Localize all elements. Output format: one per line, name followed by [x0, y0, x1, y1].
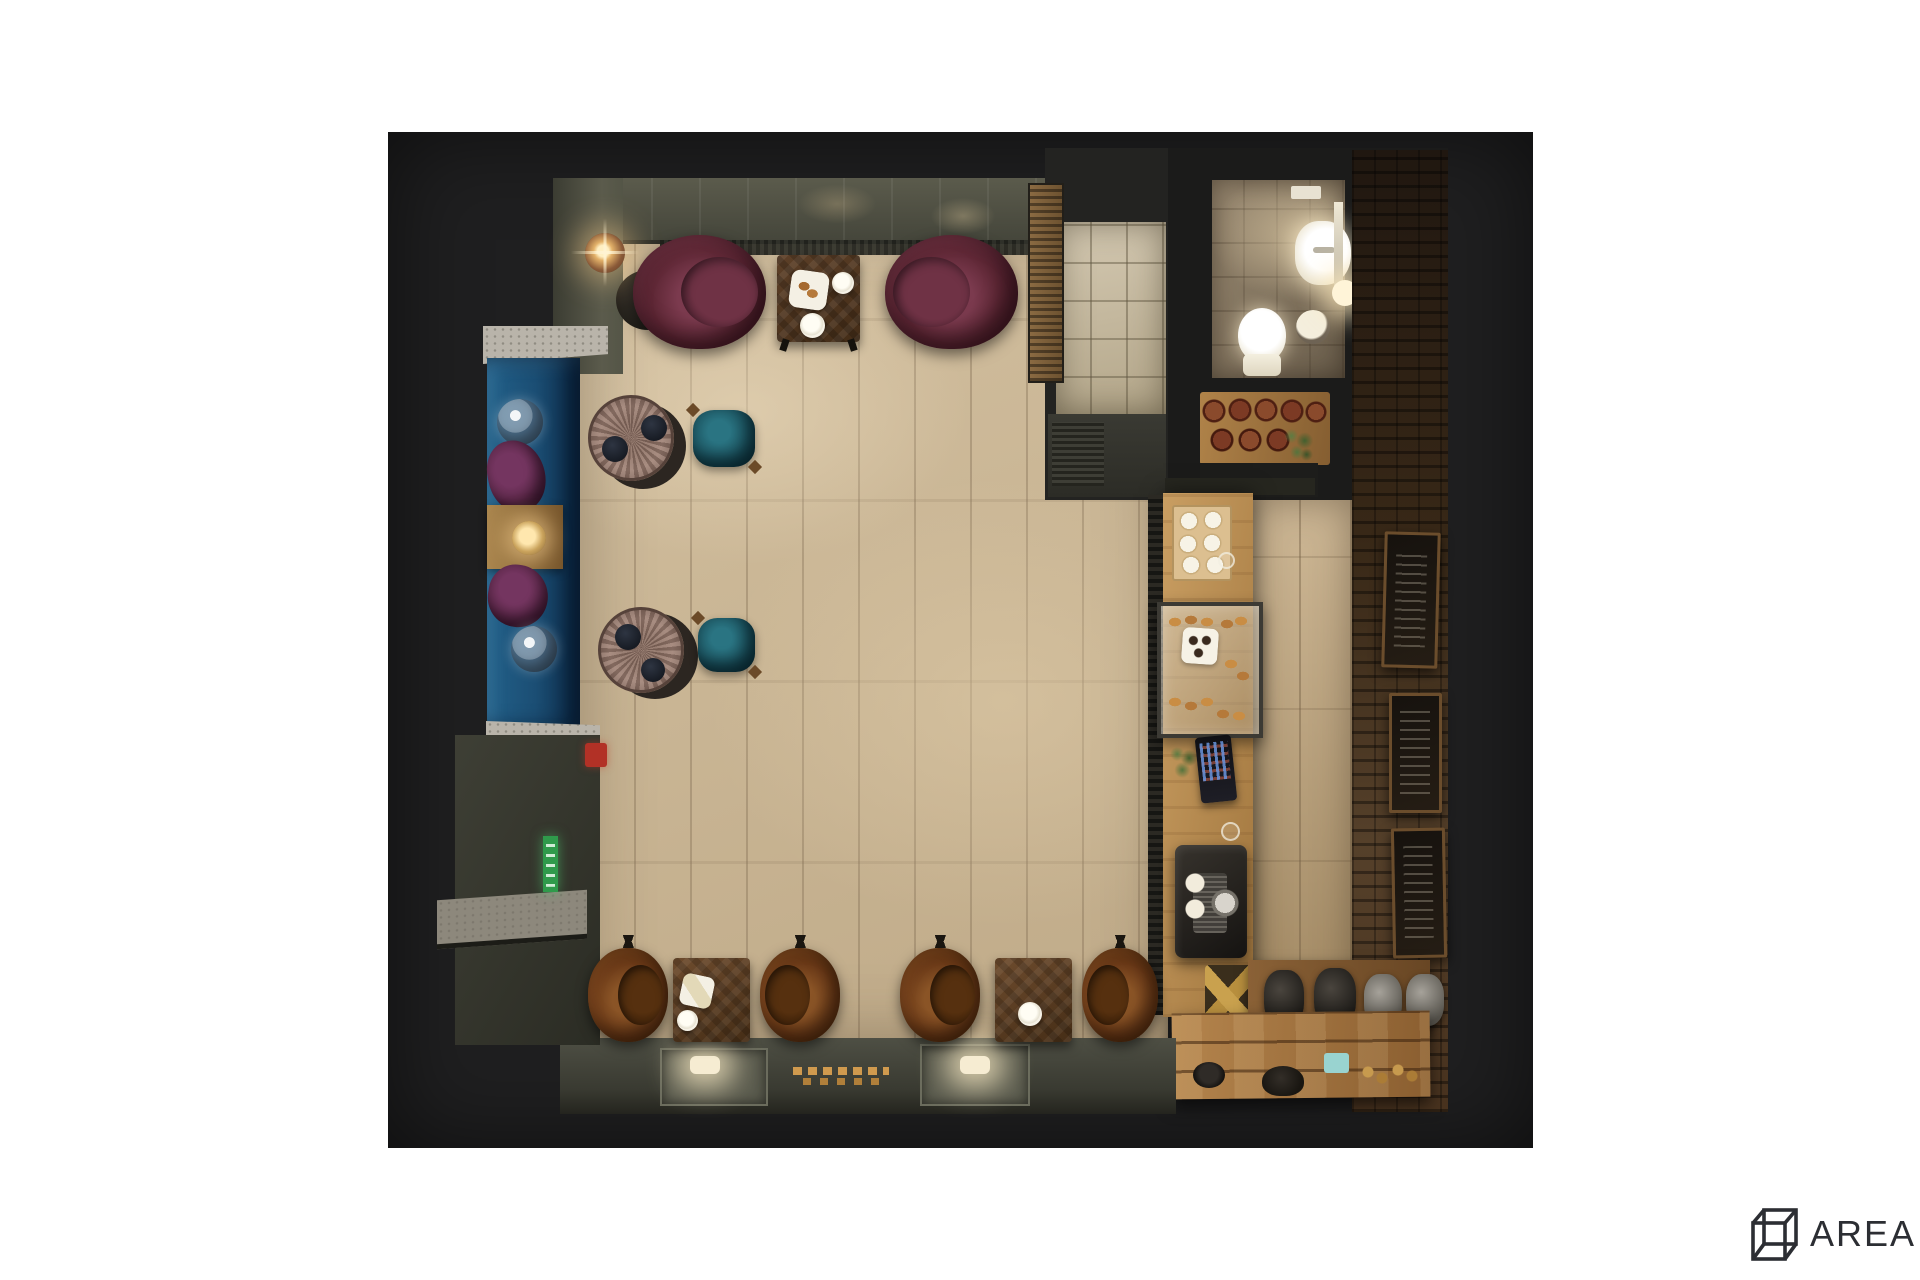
armchair-right [885, 235, 1018, 349]
entry-floor-tiles [1056, 222, 1166, 414]
dining-table-2 [995, 958, 1072, 1042]
pastries [1161, 606, 1251, 726]
chair-legs [1088, 935, 1152, 948]
entry-door [1048, 414, 1166, 497]
cup-tray [1172, 505, 1232, 581]
page: AREA 2 [0, 0, 1920, 1280]
teapot [1262, 1066, 1304, 1096]
glass-globe-1 [497, 399, 543, 445]
floor-lamp [585, 233, 625, 273]
dining-saucer-2 [1018, 1002, 1042, 1026]
floor-hatch-2 [920, 1044, 1030, 1106]
chalkboard-menu-2 [1389, 693, 1442, 813]
dining-chair-4 [1082, 948, 1158, 1042]
dining-chair-1 [588, 948, 668, 1042]
black-mug [1193, 1062, 1225, 1088]
pastry-plate [1181, 627, 1219, 665]
teal-stool-2 [698, 618, 755, 672]
logo-text: AREA [1810, 1206, 1916, 1262]
fire-extinguisher [585, 743, 607, 767]
restroom-shelf [1291, 186, 1321, 199]
floorplan-render [388, 132, 1533, 1148]
dining-plate-1 [678, 972, 716, 1010]
plate-croissants [788, 269, 831, 312]
chair-legs [594, 935, 661, 948]
hatch-lamp-2 [960, 1056, 990, 1074]
saucer-1 [832, 272, 854, 294]
partition-screen [1028, 183, 1064, 383]
water-glass-1 [1218, 552, 1235, 569]
espresso-cups [1181, 871, 1241, 931]
blue-box [1324, 1053, 1349, 1073]
armchair-left [633, 235, 766, 349]
gold-letters [793, 1065, 889, 1087]
dining-saucer-1 [677, 1010, 698, 1031]
brand-logo: AREA 2 [1750, 1206, 1920, 1264]
pos-register [1195, 734, 1238, 803]
chair-legs [906, 935, 973, 948]
saucer-2 [800, 313, 825, 338]
cube-logo-icon [1750, 1206, 1802, 1264]
glass-globe-2 [511, 626, 557, 672]
hatch-lamp-1 [690, 1056, 720, 1074]
shelf-plant [1280, 420, 1318, 466]
round-table-1 [588, 395, 674, 481]
granite-counter-end [437, 890, 587, 949]
dining-chair-2 [760, 948, 840, 1042]
restroom-stool [1296, 310, 1330, 344]
chair-legs [766, 935, 833, 948]
exit-sign [543, 836, 558, 892]
chalkboard-menu-1 [1381, 531, 1441, 668]
round-table-2 [598, 607, 684, 693]
dining-chair-3 [900, 948, 980, 1042]
top-wall [555, 178, 1052, 244]
walkway-floor [1250, 500, 1352, 1012]
chalkboard-menu-3 [1391, 828, 1447, 959]
banquette-lamp [512, 521, 546, 555]
water-glass-2 [1221, 822, 1240, 841]
gold-items [1360, 1060, 1422, 1088]
teal-stool-1 [693, 410, 755, 467]
toilet [1238, 308, 1286, 362]
